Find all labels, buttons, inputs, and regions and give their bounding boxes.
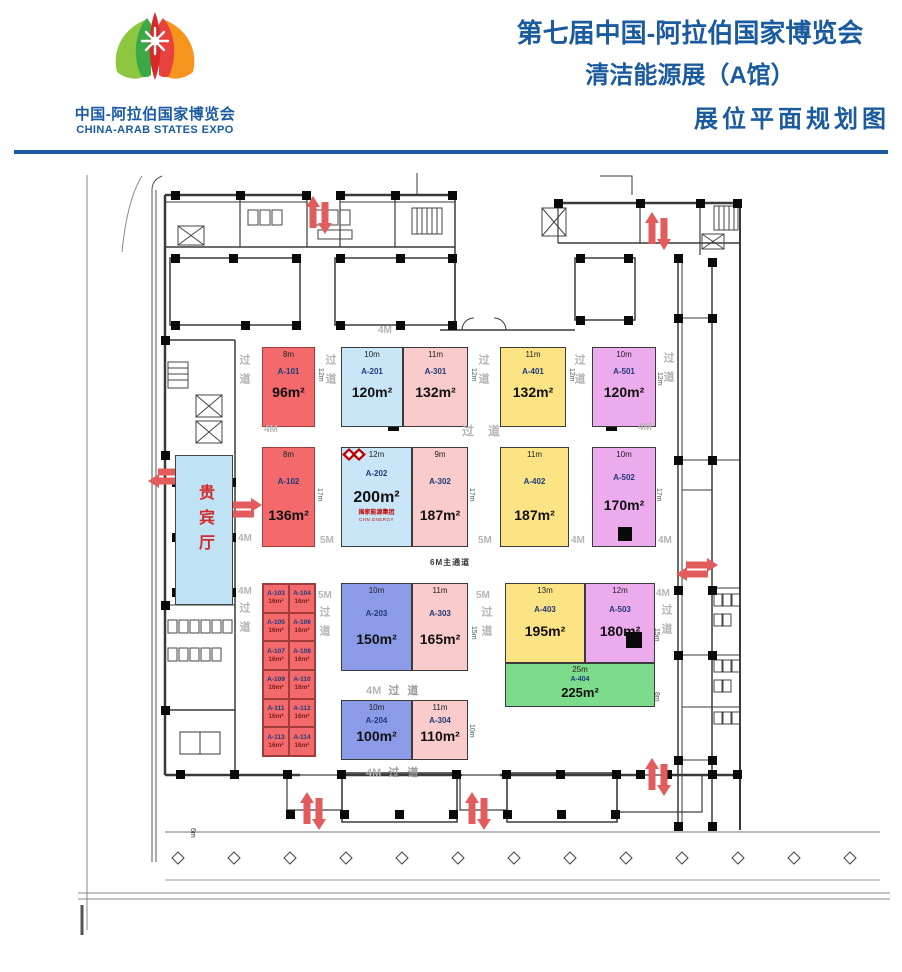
booth-code: A-304 [429,716,451,725]
dim-label: 15m [653,628,660,642]
booth-A-303: 11m A-303 165m² [412,583,468,671]
aisle-width-label: 4M [656,588,670,599]
booth-frontage: 9m [434,450,445,459]
booth-area: 132m² [415,385,455,400]
dim-label: 17m [655,488,662,502]
booth-area: 16m² [268,742,283,750]
arrow-down-icon [477,798,491,830]
booth-A-107: A-10716m² [263,641,289,670]
booth-code: A-201 [361,367,383,376]
booth-frontage: 10m [616,350,632,359]
booth-code: A-111 [268,705,285,713]
dim-label: 6m [189,828,196,838]
aisle-width-label: 4M [378,325,392,336]
header-divider [14,150,888,154]
aisle-width-label: 4M [658,535,672,546]
toilet-stalls-right [714,594,740,724]
booth-A-101: 8m A-101 96m² [262,347,315,427]
dim-label: 10m [468,724,475,738]
aisle-width-label: 4M [571,535,585,546]
elevator-topright [702,234,724,249]
main-aisle-label: 6M主通道 [430,557,470,568]
aisle-width-label: 5M [476,590,490,601]
booth-frontage: 11m [526,350,541,359]
aisle-width-label: 4M [638,422,652,433]
booth-A-105: A-10516m² [263,613,289,642]
booth-A-114: A-11416m² [289,727,315,756]
booth-area: 120m² [352,385,392,400]
booth-A-302: 9m A-302 187m² [412,447,468,547]
booth-code: A-101 [278,367,300,376]
booth-frontage: 12m [369,450,385,459]
booth-code: A-401 [522,367,544,376]
booth-A-110: A-11016m² [289,670,315,699]
booth-A-204: 10m A-204 100m² [341,700,412,760]
title-line-2: 清洁能源展（A馆） [490,54,890,98]
toilet-stalls-topleft [248,210,352,239]
booth-area: 16m² [294,656,309,664]
booth-frontage: 8m [283,450,294,459]
aisle-label: 过道 [462,422,514,439]
booth-frontage: 11m [433,703,448,712]
vip-hall: 贵宾厅 [175,455,233,605]
aisle-width-label: 5M [320,535,334,546]
aisle-label: 过道 [236,354,252,392]
booth-frontage: 12m [612,586,628,595]
booth-area: 16m² [268,713,283,721]
booth-area: 132m² [513,385,553,400]
floorplan: 贵宾厅 8m A-101 96m² 10m A-201 120m² 11m A-… [0,162,902,972]
booth-A-203: 10m A-203 150m² [341,583,412,671]
exhibitor-logo: 国家能源集团 CHN ENERGY [358,510,394,523]
arrow-down-icon [312,798,326,830]
booth-frontage: 11m [428,350,443,359]
expo-logo-icon [105,10,205,96]
booth-A-106: A-10616m² [289,613,315,642]
booth-A-113: A-11316m² [263,727,289,756]
aisle-label: 过道 [478,606,494,644]
aisle-width-label: 4M [238,586,252,597]
aisle-label: 过道 [316,606,332,644]
elevators-left [196,395,222,443]
booth-A-104: A-10416m² [289,584,315,613]
booth-code: A-501 [613,367,635,376]
booth-frontage: 10m [364,350,380,359]
booth-area: 16m² [294,713,309,721]
booth-code: A-103 [267,590,285,598]
elevator-topcenter [542,208,566,236]
aisle-word: 过道 [388,767,426,779]
booth-A-201: 10m A-201 120m² [341,347,403,427]
booth-area: 187m² [514,508,554,523]
stair-left [168,362,188,388]
aisle-label: 过道 [660,352,676,390]
booth-frontage: 10m [369,703,385,712]
aisle-width-label: 4M [264,424,278,435]
booth-code: A-106 [293,619,311,627]
booth-A-304: 11m A-304 110m² [412,700,468,760]
booth-code: A-107 [267,648,285,656]
page-title: 第七届中国-阿拉伯国家博览会 清洁能源展（A馆） 展位平面规划图 [490,12,890,142]
booth-frontage: 10m [369,586,385,595]
booth-A-301: 11m A-301 132m² [403,347,468,427]
booth-area: 16m² [268,627,283,635]
aisle-label: 过道 [322,354,338,392]
booth-area: 110m² [420,729,460,744]
small-booth-block: A-10316m² A-10416m² A-10516m² A-10616m² … [262,583,316,757]
dim-label: 15m [470,626,477,640]
booth-area: 170m² [604,498,644,513]
booth-area: 136m² [268,508,308,523]
exhibitor-name: 国家能源集团 [358,510,394,517]
booth-code: A-109 [267,676,285,684]
booth-area: 96m² [272,385,305,400]
booth-area: 225m² [561,685,599,700]
booth-code: A-113 [267,734,284,742]
left-corridor [152,176,162,862]
arrow-down-icon [318,202,332,234]
booth-A-111: A-11116m² [263,699,289,728]
booth-code: A-402 [524,477,546,486]
aisle-width: 4M [366,767,381,779]
booth-frontage: 13m [537,586,553,595]
arrow-up-icon [645,758,659,790]
booth-frontage: 11m [527,450,542,459]
booth-code: A-203 [366,609,388,618]
booth-frontage: 10m [616,450,632,459]
booth-code: A-114 [293,734,310,742]
booth-area: 16m² [268,684,283,692]
arrow-right-icon [686,558,718,572]
stair-top [412,208,442,234]
booth-area: 16m² [268,656,283,664]
column-marker [618,527,632,541]
booth-area: 16m² [294,598,309,606]
booth-code: A-108 [293,648,311,656]
aisle-width-label: 4M [238,533,252,544]
booth-code: A-102 [278,477,300,486]
expo-floorplan-page: 中国-阿拉伯国家博览会 CHINA-ARAB STATES EXPO 第七届中国… [0,0,902,972]
canopy-diamonds [172,852,856,864]
arrow-down-icon [657,764,671,796]
booth-A-402: 11m A-402 187m² [500,447,569,547]
booth-A-102: 8m A-102 136m² [262,447,315,547]
booth-A-502: 10m A-502 170m² [592,447,656,547]
booth-A-103: A-10316m² [263,584,289,613]
booth-A-401: 11m A-401 132m² [500,347,566,427]
arrow-up-icon [465,792,479,824]
booth-A-404: 25m A-404 225m² [505,663,655,707]
booth-A-503: 12m A-503 180m² [585,583,655,663]
booth-area: 165m² [420,632,460,647]
booth-code: A-105 [267,619,285,627]
booth-frontage: 8m [283,350,294,359]
booth-code: A-202 [366,469,388,478]
aisle-width: 4M [366,685,381,697]
booth-A-112: A-11216m² [289,699,315,728]
exhibitor-name-en: CHN ENERGY [359,517,394,523]
expo-logo-name-en: CHINA-ARAB STATES EXPO [50,124,260,136]
elevator-topleft [178,226,204,245]
column-marker [626,632,642,648]
booth-code: A-403 [534,605,556,614]
aisle-width-label: 4M 过道 [366,682,426,698]
aisle-label: 过道 [658,604,674,642]
aisle-label: 过道 [236,602,252,640]
dim-label: 8m [653,692,660,702]
arrow-left-icon [676,567,708,581]
booth-area: 16m² [294,742,309,750]
booth-code: A-110 [293,676,310,684]
booth-area: 100m² [356,729,396,744]
booth-area: 16m² [294,627,309,635]
booth-code: A-204 [366,716,388,725]
booth-code: A-303 [429,609,451,618]
stair-topright [714,206,738,230]
booth-A-108: A-10816m² [289,641,315,670]
booth-code: A-502 [613,473,635,482]
booth-area: 16m² [268,598,283,606]
aisle-width-label: 4M 过道 [366,764,426,780]
booth-A-501: 10m A-501 120m² [592,347,656,427]
booth-area: 16m² [294,684,309,692]
booth-code: A-503 [609,605,631,614]
arrow-up-icon [645,212,659,244]
expo-logo-name-cn: 中国-阿拉伯国家博览会 [50,103,260,124]
aisle-label: 过道 [475,354,491,392]
booth-area: 195m² [525,624,565,639]
booth-code: A-404 [570,675,589,684]
booth-A-109: A-10916m² [263,670,289,699]
arrow-up-icon [306,196,320,228]
expo-logo: 中国-阿拉伯国家博览会 CHINA-ARAB STATES EXPO [50,10,260,136]
dim-label: 17m [316,488,323,502]
aisle-width-label: 5M [478,535,492,546]
booth-code: A-104 [293,590,311,598]
arrow-up-icon [300,792,314,824]
booth-code: A-301 [425,367,447,376]
booth-A-202: 12m A-202 200m² 国家能源集团 CHN ENERGY [341,447,412,547]
booth-area: 200m² [353,490,399,505]
booth-frontage: 11m [433,586,448,595]
vip-hall-label: 贵宾厅 [192,484,216,559]
chn-energy-icon [342,448,366,461]
aisle-width-label: 5M [318,590,332,601]
booth-frontage: 25m [572,665,588,674]
booth-code: A-112 [293,705,310,713]
booth-area: 150m² [356,632,396,647]
booth-area: 120m² [604,385,644,400]
title-line-1: 第七届中国-阿拉伯国家博览会 [490,12,890,54]
booth-code: A-302 [429,477,451,486]
booth-A-403: 13m A-403 195m² [505,583,585,663]
booth-area: 187m² [420,508,460,523]
arrow-down-icon [657,218,671,250]
dim-label: 17m [468,488,475,502]
aisle-word: 过道 [388,685,426,697]
aisle-label: 过道 [571,354,587,392]
title-line-3: 展位平面规划图 [490,98,890,142]
toilet-stalls-left [168,620,232,661]
